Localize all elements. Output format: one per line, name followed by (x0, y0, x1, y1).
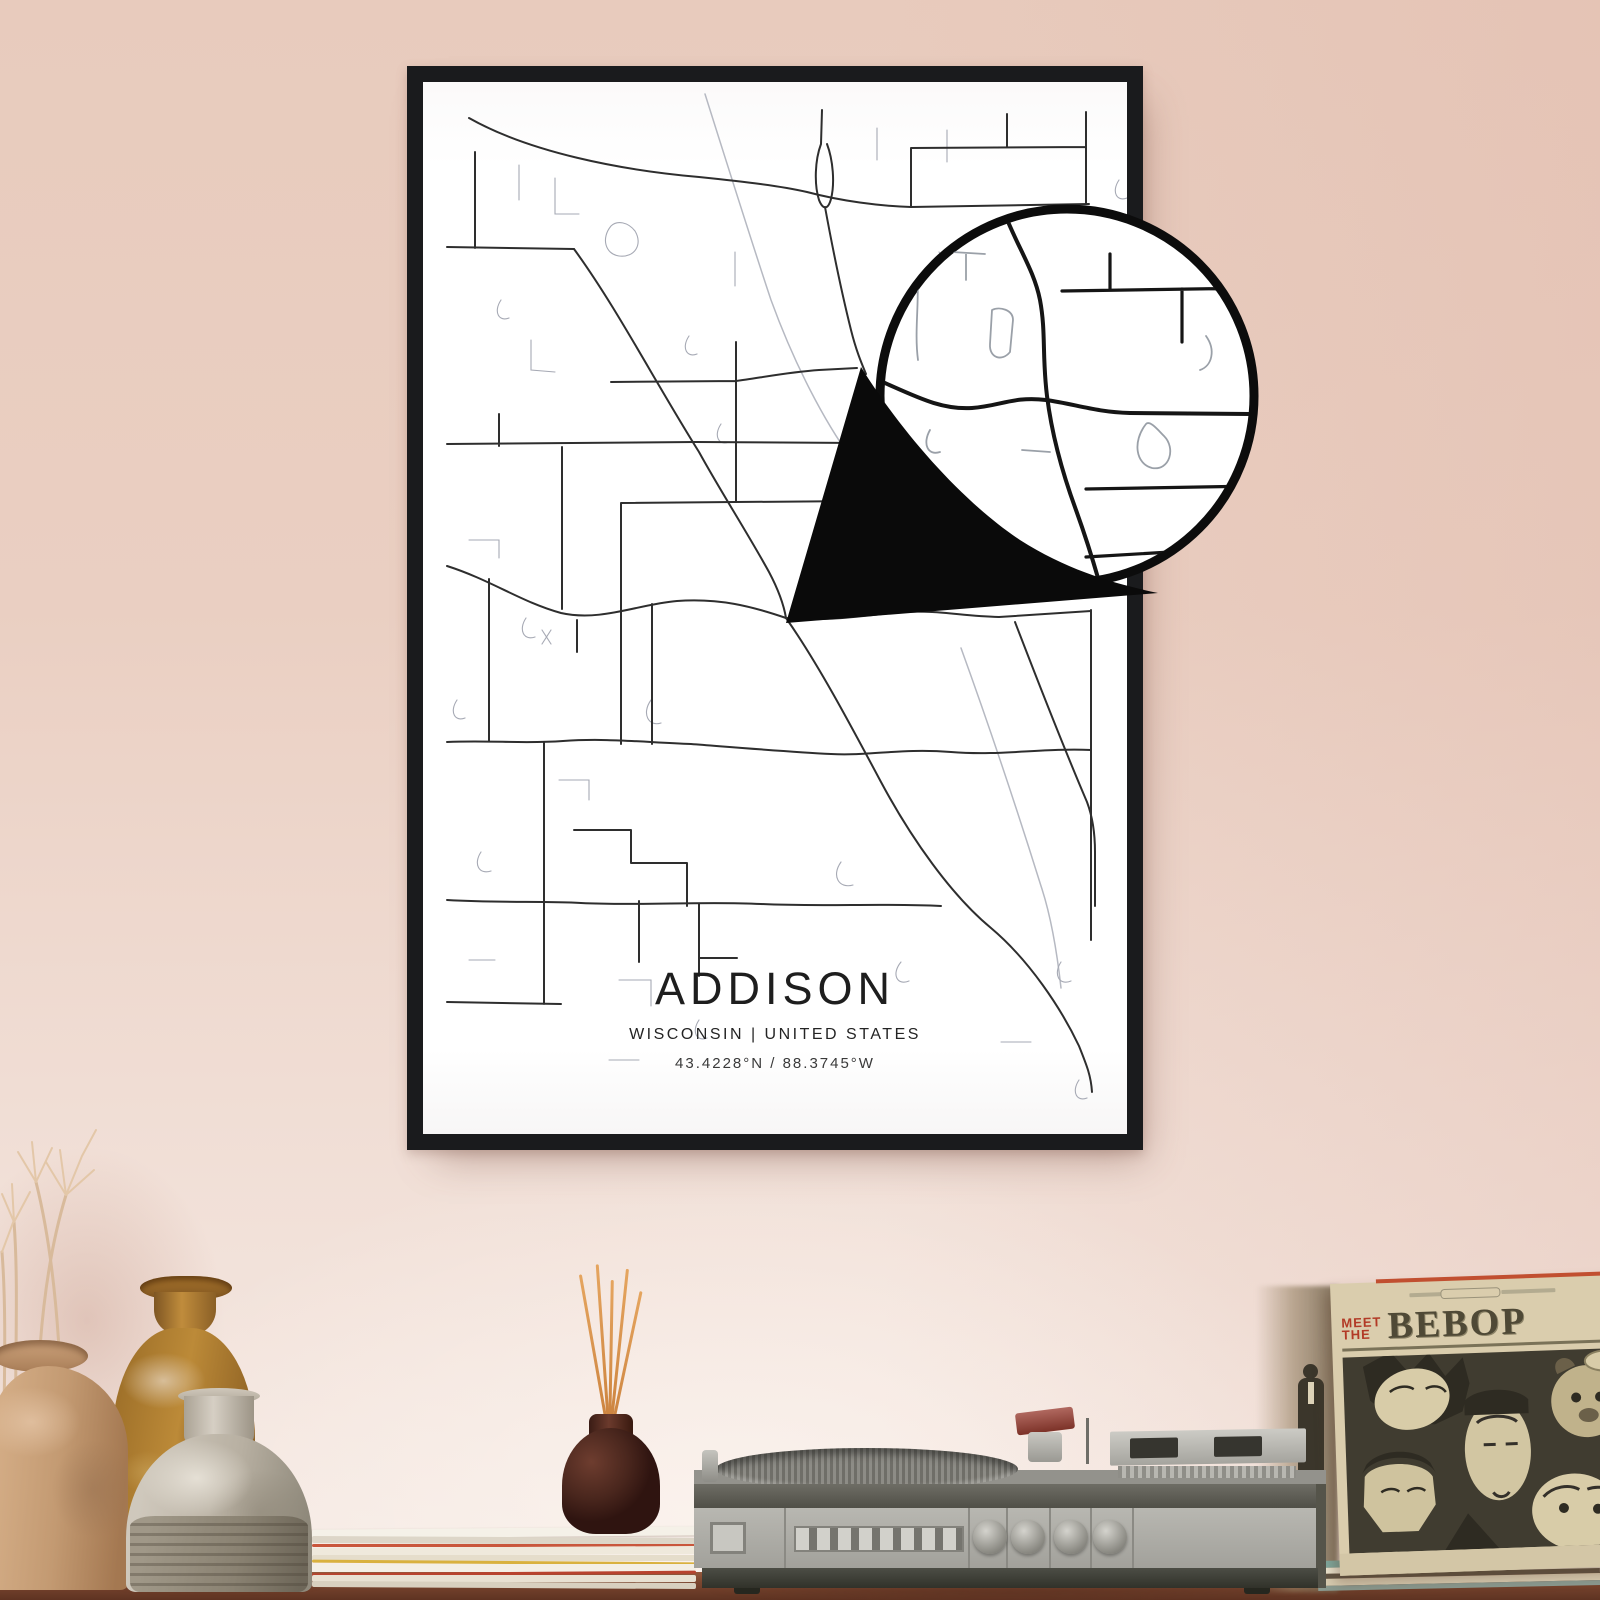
panel-divider (784, 1508, 786, 1568)
map-poster: ADDISON WISCONSIN | UNITED STATES 43.422… (423, 82, 1127, 1134)
grey-vase-ribs (130, 1516, 308, 1592)
player-foot (734, 1588, 760, 1594)
player-foot (1244, 1588, 1270, 1594)
major-roads (447, 110, 1095, 1092)
record-player (694, 1404, 1326, 1592)
power-button (710, 1522, 746, 1554)
preset-buttons (794, 1526, 964, 1552)
tan-vase-body (0, 1366, 128, 1590)
reed-diffuser (540, 1268, 680, 1536)
tan-vase (0, 1340, 132, 1590)
player-front-panel (694, 1508, 1326, 1568)
sleeve-album-title: BEBOP (1387, 1303, 1527, 1344)
sleeve-artwork (1343, 1347, 1600, 1553)
panel-divider (968, 1508, 970, 1568)
slider-slot (1130, 1438, 1178, 1459)
deck-edge (694, 1484, 1326, 1508)
sleeve-meet-the: MEET THE (1341, 1316, 1382, 1341)
poster-frame: ADDISON WISCONSIN | UNITED STATES 43.422… (407, 66, 1143, 1150)
poster-coordinates: 43.4228°N / 88.3745°W (423, 1055, 1127, 1072)
bass-knob (1054, 1520, 1088, 1554)
speed-lever (702, 1450, 718, 1482)
panel-divider (1132, 1508, 1134, 1568)
sleeve-line2: THE (1342, 1328, 1383, 1341)
tonearm-pivot (1028, 1432, 1062, 1462)
grey-ribbed-vase (126, 1388, 312, 1592)
sleeve-art-faces (1343, 1347, 1600, 1553)
railroad-lines (705, 94, 1061, 988)
volume-knob (973, 1520, 1007, 1554)
cue-rod (1086, 1418, 1089, 1464)
poster-text-block: ADDISON WISCONSIN | UNITED STATES 43.422… (423, 966, 1127, 1072)
panel-divider (1090, 1508, 1092, 1568)
magazine (312, 1581, 696, 1589)
stereo-mark-icon (1440, 1287, 1500, 1299)
treble-knob (1093, 1520, 1127, 1554)
balance-knob (1011, 1520, 1045, 1554)
control-strip (1118, 1466, 1296, 1478)
panel-divider (1049, 1508, 1051, 1568)
room-scene: ADDISON WISCONSIN | UNITED STATES 43.422… (0, 0, 1600, 1600)
poster-title: ADDISON (423, 966, 1127, 1011)
player-base (702, 1568, 1318, 1588)
record-sleeve: MEET THE BEBOP (1330, 1274, 1600, 1576)
minor-roads (453, 128, 1127, 1099)
diffuser-bottle (562, 1428, 660, 1534)
slider-slot (1214, 1436, 1262, 1457)
magazine-stack (312, 1528, 696, 1588)
slider-panel (1110, 1428, 1306, 1465)
poster-subtitle: WISCONSIN | UNITED STATES (423, 1026, 1127, 1044)
